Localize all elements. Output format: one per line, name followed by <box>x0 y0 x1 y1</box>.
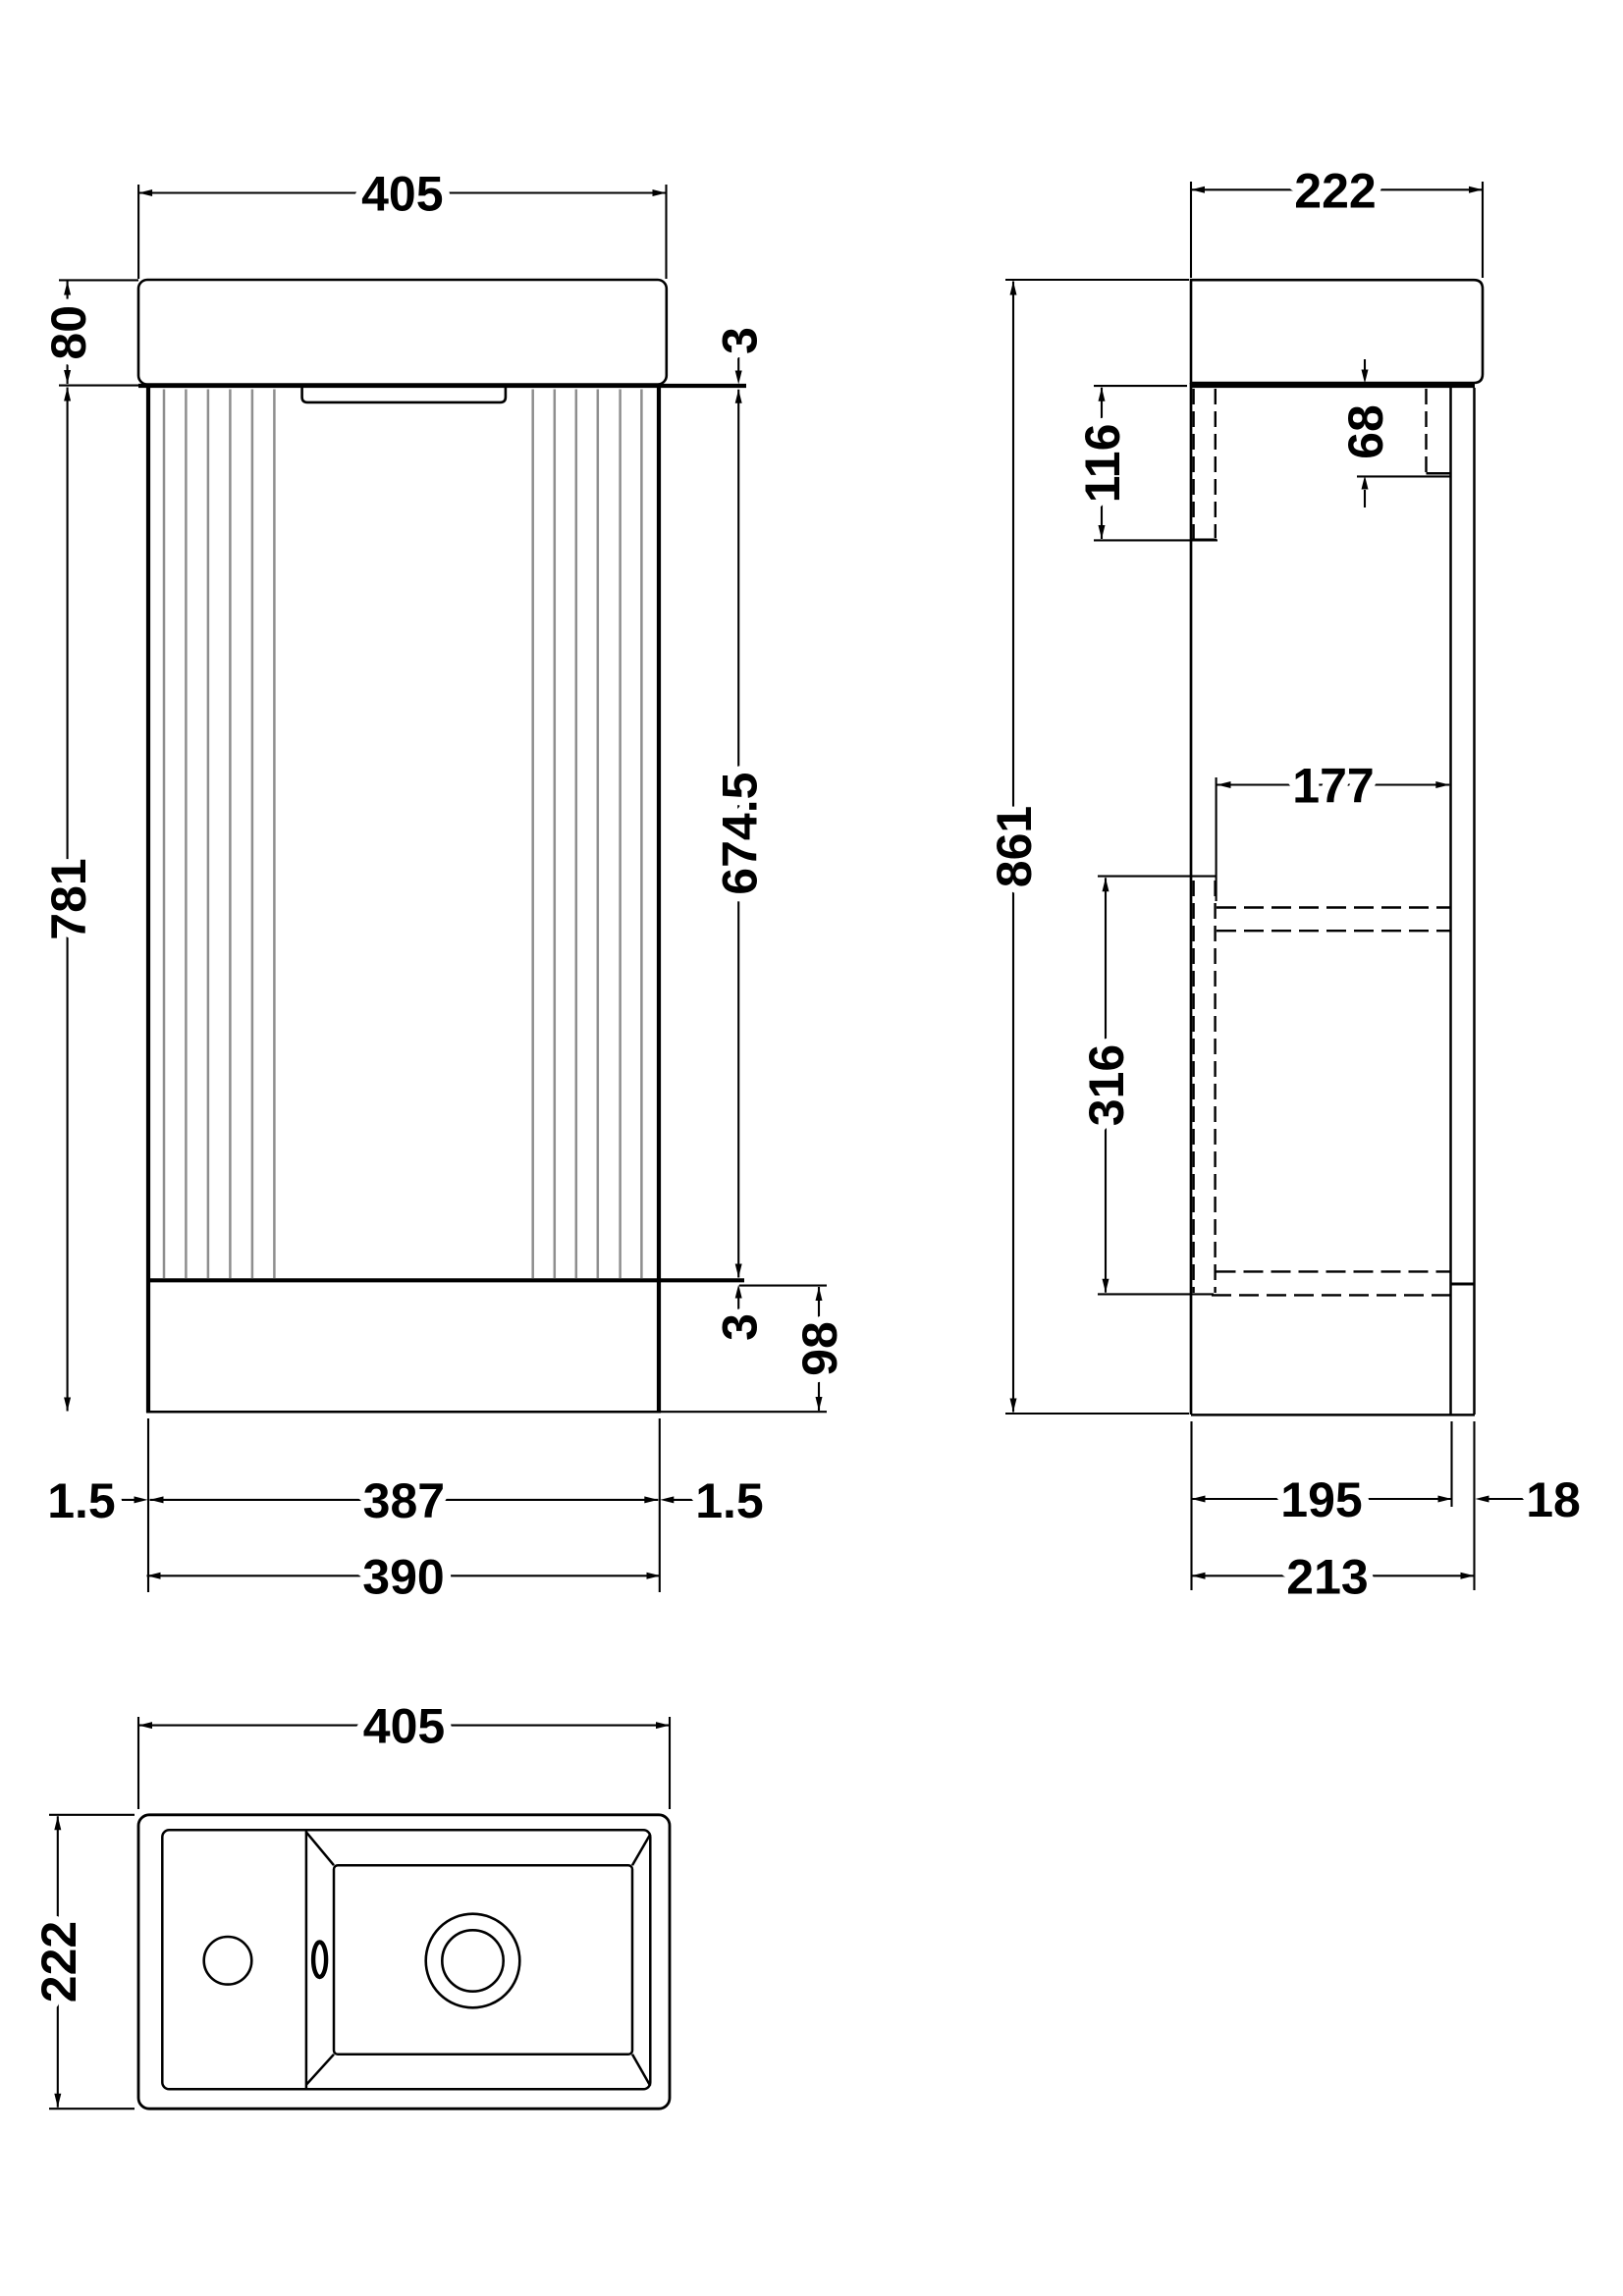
svg-text:116: 116 <box>1075 424 1130 504</box>
svg-text:177: 177 <box>1292 759 1374 814</box>
svg-text:3: 3 <box>712 1313 767 1341</box>
svg-text:222: 222 <box>1294 163 1376 218</box>
svg-text:1.5: 1.5 <box>695 1473 764 1528</box>
svg-text:80: 80 <box>41 305 96 360</box>
svg-text:213: 213 <box>1286 1549 1368 1604</box>
svg-text:781: 781 <box>41 858 96 939</box>
svg-text:195: 195 <box>1280 1472 1362 1527</box>
svg-text:68: 68 <box>1338 404 1393 459</box>
svg-text:3: 3 <box>712 327 767 354</box>
svg-text:1.5: 1.5 <box>47 1473 116 1528</box>
svg-text:674.5: 674.5 <box>712 773 767 895</box>
svg-text:222: 222 <box>31 1921 86 2002</box>
svg-text:405: 405 <box>363 1699 445 1754</box>
svg-text:390: 390 <box>362 1549 444 1604</box>
svg-text:405: 405 <box>361 167 443 222</box>
svg-text:18: 18 <box>1526 1472 1581 1527</box>
svg-text:861: 861 <box>987 806 1042 887</box>
svg-text:316: 316 <box>1079 1044 1134 1126</box>
svg-text:98: 98 <box>792 1321 847 1376</box>
svg-text:387: 387 <box>363 1473 445 1528</box>
